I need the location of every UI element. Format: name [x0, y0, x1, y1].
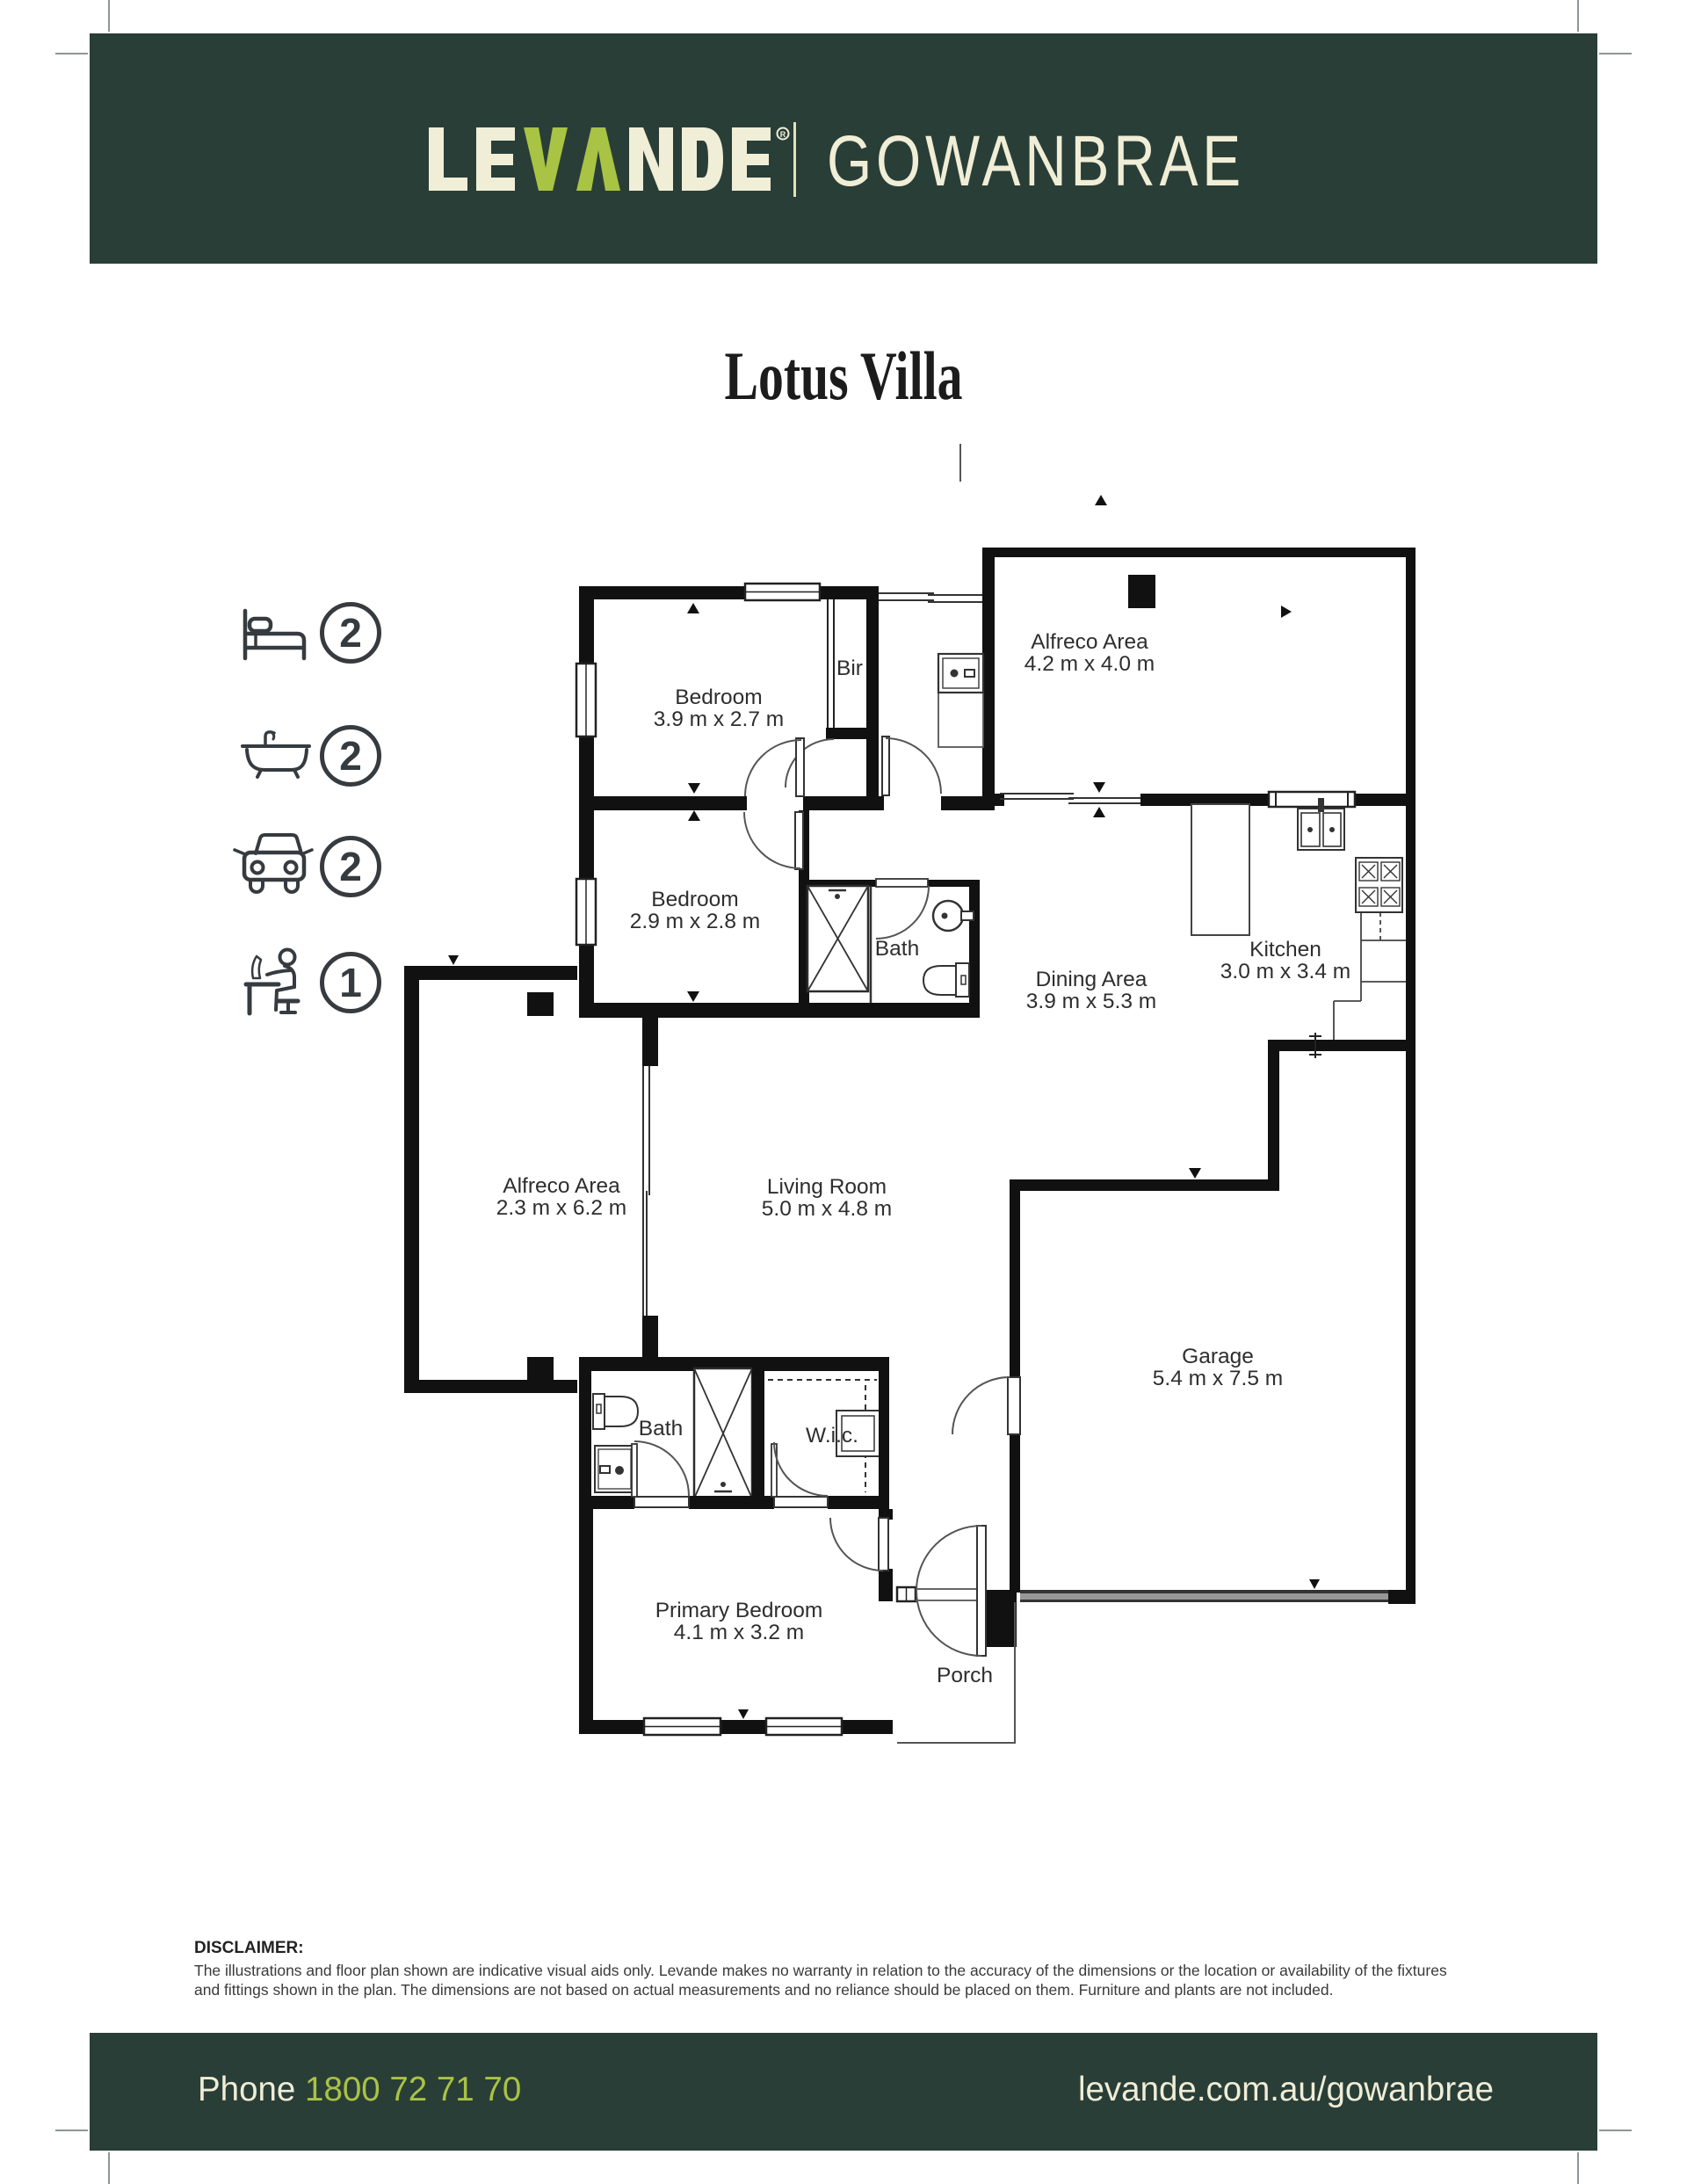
- svg-text:2.9 m x 2.8 m: 2.9 m x 2.8 m: [630, 910, 760, 933]
- svg-text:5.0 m x 4.8 m: 5.0 m x 4.8 m: [762, 1197, 892, 1221]
- svg-text:Primary Bedroom: Primary Bedroom: [655, 1599, 823, 1622]
- svg-text:Bath: Bath: [639, 1417, 683, 1440]
- svg-text:Living Room: Living Room: [767, 1175, 887, 1199]
- svg-text:3.9 m x 5.3 m: 3.9 m x 5.3 m: [1026, 990, 1156, 1013]
- svg-text:Alfreco Area: Alfreco Area: [1031, 630, 1148, 654]
- svg-text:2: 2: [339, 733, 362, 779]
- svg-text:Bath: Bath: [875, 937, 919, 961]
- svg-text:Bir: Bir: [836, 657, 863, 680]
- svg-text:Alfreco Area: Alfreco Area: [503, 1174, 620, 1198]
- svg-text:Bedroom: Bedroom: [675, 686, 762, 709]
- svg-text:3.0 m x 3.4 m: 3.0 m x 3.4 m: [1220, 960, 1350, 983]
- svg-text:Porch: Porch: [937, 1664, 993, 1687]
- svg-text:4.2 m x 4.0 m: 4.2 m x 4.0 m: [1025, 652, 1155, 676]
- svg-text:4.1 m x 3.2 m: 4.1 m x 3.2 m: [674, 1621, 804, 1644]
- svg-text:Kitchen: Kitchen: [1249, 938, 1321, 961]
- svg-text:2: 2: [339, 844, 362, 889]
- svg-text:5.4 m x 7.5 m: 5.4 m x 7.5 m: [1153, 1367, 1283, 1390]
- svg-text:W.i.c.: W.i.c.: [806, 1424, 858, 1448]
- svg-text:2: 2: [339, 610, 362, 656]
- svg-text:Dining Area: Dining Area: [1036, 968, 1148, 991]
- svg-text:1: 1: [339, 960, 362, 1005]
- svg-text:2.3 m x 6.2 m: 2.3 m x 6.2 m: [496, 1196, 626, 1220]
- svg-text:Garage: Garage: [1182, 1345, 1254, 1368]
- svg-text:3.9 m x 2.7 m: 3.9 m x 2.7 m: [654, 707, 784, 731]
- svg-text:Bedroom: Bedroom: [651, 888, 738, 911]
